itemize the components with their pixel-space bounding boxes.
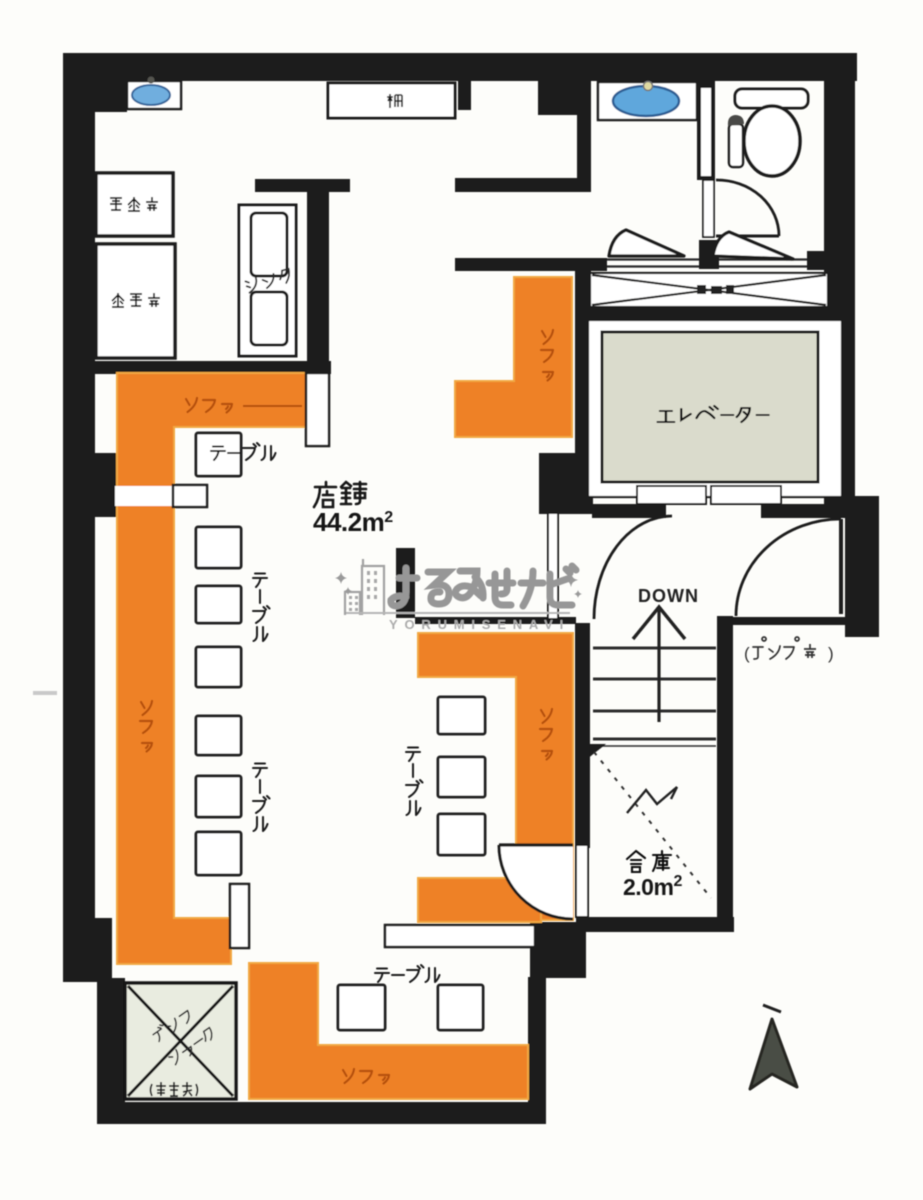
svg-text:44.2m2: 44.2m2 xyxy=(313,507,393,537)
svg-text:DOWN: DOWN xyxy=(638,586,699,606)
svg-text:): ) xyxy=(828,644,834,663)
svg-text:(: ( xyxy=(744,644,750,663)
svg-text:YORUMISENAVI: YORUMISENAVI xyxy=(389,617,570,632)
